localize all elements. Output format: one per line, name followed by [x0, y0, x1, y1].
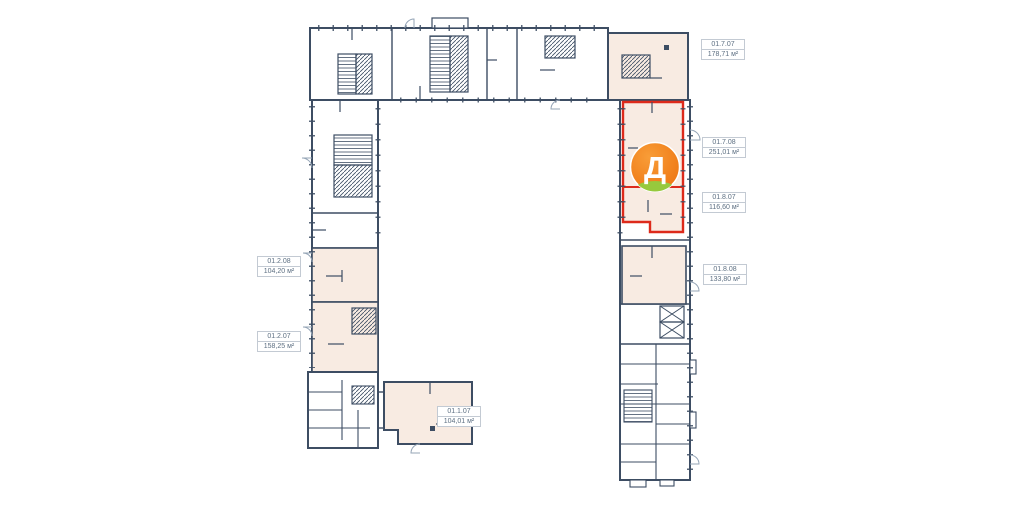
bottom-left-block: [308, 372, 384, 448]
stair-core-icon: [334, 135, 372, 197]
unit-01-7-07[interactable]: [608, 33, 688, 100]
unit-area: 104,20 м²: [257, 266, 301, 277]
unit-label[interactable]: 01.2.07158,25 м²: [257, 331, 301, 352]
unit-01-8-08[interactable]: [622, 246, 686, 304]
unit-01-2-08[interactable]: [312, 248, 378, 302]
unit-area: 251,01 м²: [702, 147, 746, 158]
unit-01-2-07[interactable]: [312, 302, 378, 375]
unit-area: 158,25 м²: [257, 341, 301, 352]
unit-label[interactable]: 01.1.07104,01 м²: [437, 406, 481, 427]
unit-area: 178,71 м²: [701, 49, 745, 60]
unit-label[interactable]: 01.7.07178,71 м²: [701, 39, 745, 60]
unit-label[interactable]: 01.8.07116,60 м²: [702, 192, 746, 213]
unit-label[interactable]: 01.2.08104,20 м²: [257, 256, 301, 277]
floorplan-stage: Д 01.7.07178,71 м²01.7.08251,01 м²01.8.0…: [0, 0, 1024, 520]
badge-letter: Д: [644, 150, 666, 185]
unit-label[interactable]: 01.7.08251,01 м²: [702, 137, 746, 158]
unit-area: 133,80 м²: [703, 274, 747, 285]
unit-area: 116,60 м²: [702, 202, 746, 213]
floorplan-drawing: Д: [0, 0, 1024, 520]
unit-label[interactable]: 01.8.08133,80 м²: [703, 264, 747, 285]
unit-area: 104,01 м²: [437, 416, 481, 427]
top-wing: [310, 18, 608, 100]
